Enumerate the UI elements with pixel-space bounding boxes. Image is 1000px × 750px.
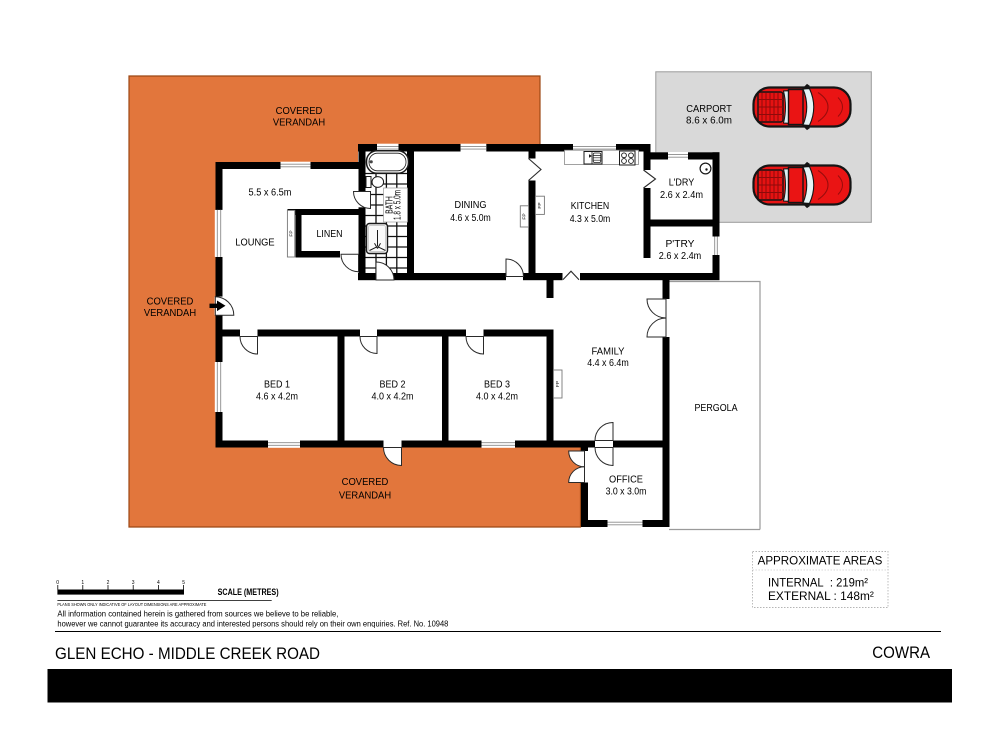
svg-text:BED 3: BED 3 (484, 380, 510, 391)
svg-text:All information contained here: All information contained herein is gath… (57, 610, 338, 619)
svg-text:OFFICE: OFFICE (609, 475, 643, 486)
svg-text:COVERED: COVERED (276, 106, 323, 117)
svg-text:LINEN: LINEN (317, 229, 343, 240)
svg-text:VERANDAH: VERANDAH (144, 308, 196, 319)
svg-text:EXTERNAL : 148m²: EXTERNAL : 148m² (768, 589, 874, 603)
svg-text:LOUNGE: LOUNGE (235, 238, 275, 249)
svg-text:4.4 x 6.4m: 4.4 x 6.4m (587, 358, 629, 369)
svg-text:4.0 x 4.2m: 4.0 x 4.2m (476, 392, 518, 403)
svg-text:FP: FP (288, 230, 294, 236)
svg-text:L'DRY: L'DRY (669, 178, 695, 189)
svg-text:1.8 x 5.0m: 1.8 x 5.0m (393, 190, 404, 220)
svg-text:GLEN ECHO - MIDDLE CREEK ROAD: GLEN ECHO - MIDDLE CREEK ROAD (55, 644, 320, 663)
svg-text:FAMILY: FAMILY (592, 347, 625, 358)
svg-text:BED 2: BED 2 (380, 380, 406, 391)
svg-text:4.0 x 4.2m: 4.0 x 4.2m (372, 392, 414, 403)
svg-text:4.6 x 4.2m: 4.6 x 4.2m (256, 392, 298, 403)
svg-text:CARPORT: CARPORT (686, 104, 732, 115)
svg-text:3.0 x 3.0m: 3.0 x 3.0m (606, 487, 647, 498)
svg-text:COWRA: COWRA (872, 644, 930, 662)
svg-text:COVERED: COVERED (147, 297, 194, 308)
svg-text:FP: FP (522, 213, 528, 219)
svg-text:COVERED: COVERED (342, 477, 389, 488)
svg-text:however we cannot guarantee it: however we cannot guarantee its accuracy… (57, 620, 448, 629)
svg-text:8.6 x 6.0m: 8.6 x 6.0m (686, 116, 732, 127)
svg-text:P'TRY: P'TRY (666, 239, 695, 250)
svg-text:VERANDAH: VERANDAH (273, 118, 325, 129)
svg-text:4.3 x 5.0m: 4.3 x 5.0m (570, 214, 611, 225)
svg-text:SCALE (METRES): SCALE (METRES) (218, 587, 279, 598)
svg-text:2.6 x 2.4m: 2.6 x 2.4m (659, 251, 702, 262)
svg-text:FP: FP (555, 381, 561, 387)
svg-text:5.5 x 6.5m: 5.5 x 6.5m (249, 188, 292, 199)
svg-text:KITCHEN: KITCHEN (571, 201, 609, 212)
svg-text:BED 1: BED 1 (264, 380, 290, 391)
svg-text:PERGOLA: PERGOLA (694, 403, 737, 414)
svg-text:PLANS SHOWN ONLY INDICATIVE OF: PLANS SHOWN ONLY INDICATIVE OF LAYOUT DI… (57, 602, 206, 607)
svg-text:4.6 x 5.0m: 4.6 x 5.0m (450, 213, 491, 224)
svg-text:FP: FP (537, 202, 543, 208)
svg-text:2.6 x 2.4m: 2.6 x 2.4m (660, 190, 703, 201)
svg-text:INTERNAL : 219m²: INTERNAL : 219m² (768, 576, 868, 590)
svg-text:APPROXIMATE AREAS: APPROXIMATE AREAS (758, 554, 883, 568)
svg-text:DINING: DINING (455, 200, 487, 211)
svg-text:VERANDAH: VERANDAH (339, 490, 391, 501)
